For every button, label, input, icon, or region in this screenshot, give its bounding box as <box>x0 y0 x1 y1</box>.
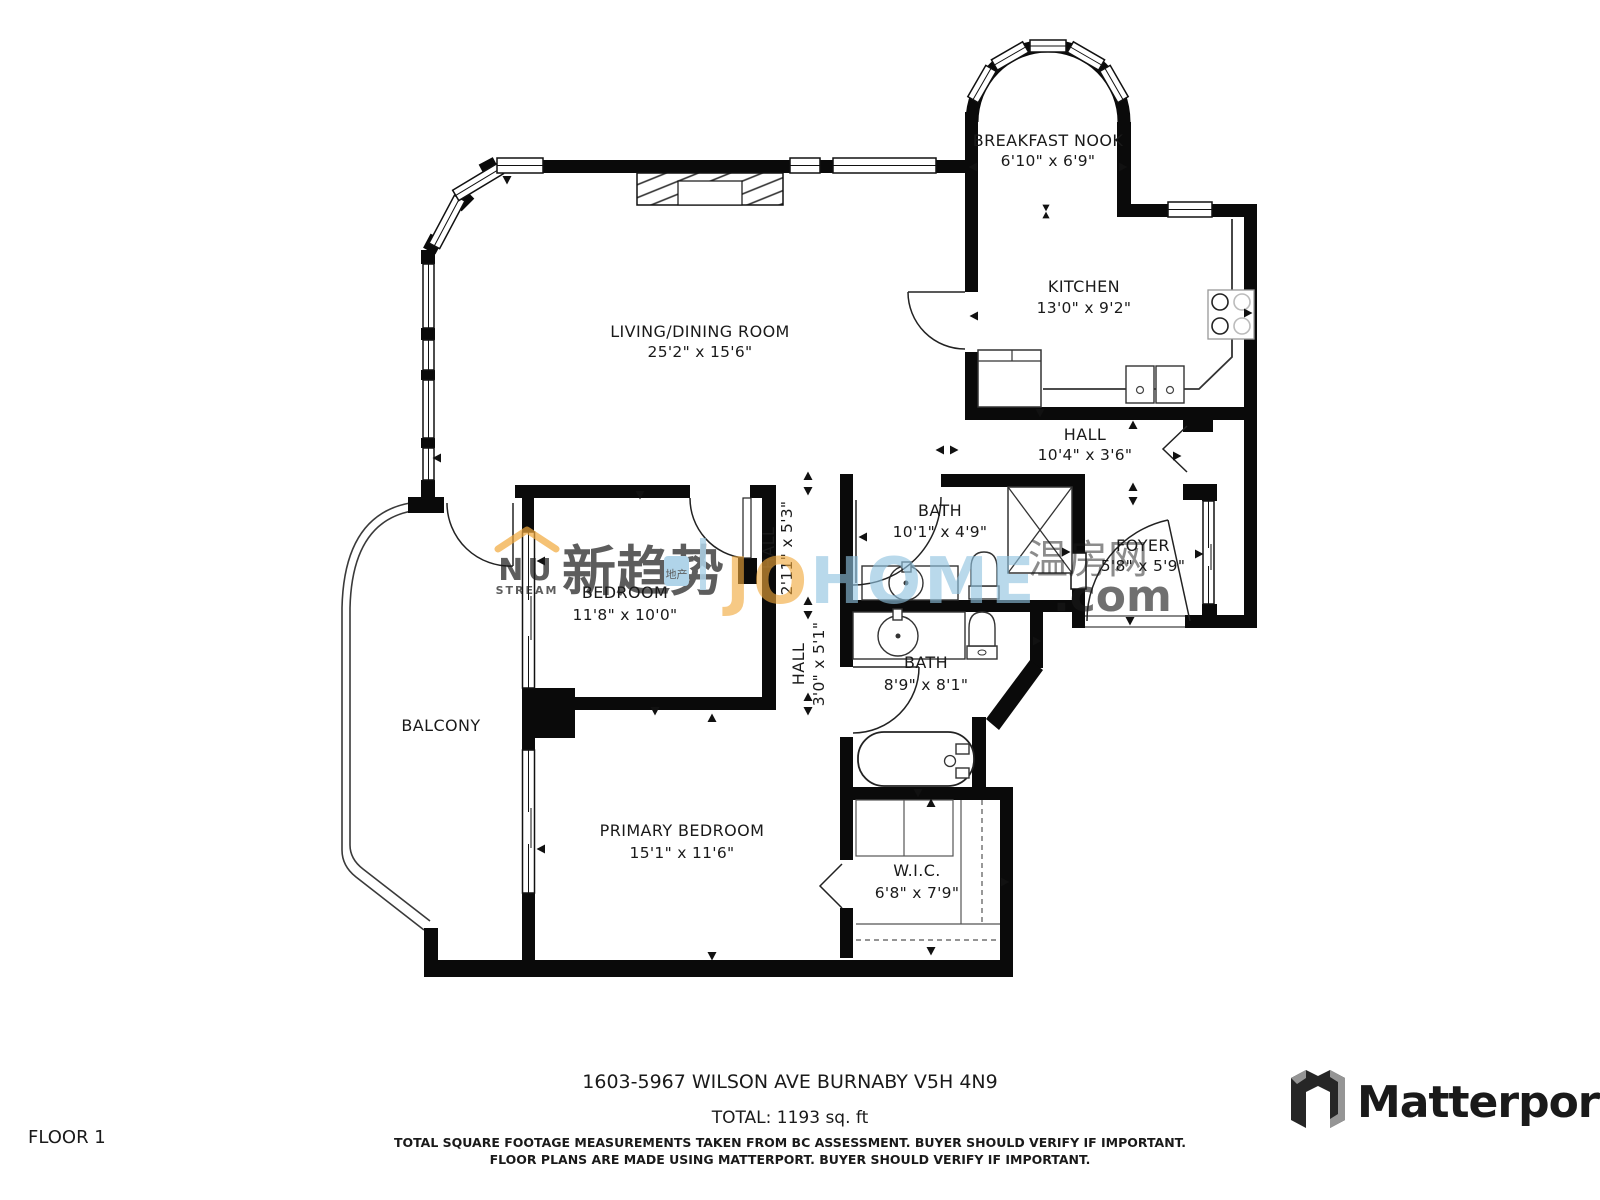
matterport-logo-icon <box>1291 1070 1345 1128</box>
nu-stream-cn-text: 新趋势 <box>562 540 724 603</box>
room-label-hall-upper: HALL <box>1064 425 1106 444</box>
room-dims-bath-main: 10'1" x 4'9" <box>893 523 988 541</box>
room-label-living-dining: LIVING/DINING ROOM <box>610 322 790 341</box>
watermark-divider <box>700 538 706 590</box>
room-label-bath-ensuite: BATH <box>904 653 948 672</box>
address-text: 1603-5967 WILSON AVE BURNABY V5H 4N9 <box>582 1071 997 1093</box>
johome-tld: .com <box>1053 571 1172 622</box>
room-dims-bath-ensuite: 8'9" x 8'1" <box>884 676 969 694</box>
nook-table-icon <box>1042 205 1049 219</box>
windows <box>423 158 1214 893</box>
room-dims-bedroom: 11'8" x 10'0" <box>573 606 678 624</box>
nu-stream-stream-text: STREAM <box>496 584 559 597</box>
footer: 1603-5967 WILSON AVE BURNABY V5H 4N9 TOT… <box>28 1070 1600 1167</box>
bay-window-arch <box>968 40 1128 122</box>
johome-wordmark: JOHOME <box>722 545 1038 619</box>
nu-stream-cn-suffix: 地产 <box>666 567 688 581</box>
kitchen-sink-icon <box>1126 366 1184 403</box>
room-label-wic: W.I.C. <box>893 861 941 880</box>
nu-stream-nu-text: NU <box>498 553 555 588</box>
room-dims-hall-lower: 3'0" x 5'1" <box>810 622 828 707</box>
room-label-hall-lower: HALL <box>789 643 808 685</box>
floorplan-svg: BREAKFAST NOOK 6'10" x 6'9" KITCHEN 13'0… <box>0 0 1600 1200</box>
floor-label: FLOOR 1 <box>28 1127 106 1148</box>
disclaimer-text-1: TOTAL SQUARE FOOTAGE MEASUREMENTS TAKEN … <box>394 1135 1186 1150</box>
floorplan-page: BREAKFAST NOOK 6'10" x 6'9" KITCHEN 13'0… <box>0 0 1600 1200</box>
disclaimer-text-2: FLOOR PLANS ARE MADE USING MATTERPORT. B… <box>490 1152 1091 1167</box>
fireplace-icon <box>637 173 783 205</box>
room-label-kitchen: KITCHEN <box>1048 277 1120 296</box>
room-dims-breakfast-nook: 6'10" x 6'9" <box>1001 152 1096 170</box>
hall-closet-bifold-door <box>1163 426 1187 472</box>
room-dims-hall-upper: 10'4" x 3'6" <box>1038 446 1133 464</box>
room-dims-living-dining: 25'2" x 15'6" <box>648 343 753 361</box>
room-label-breakfast-nook: BREAKFAST NOOK <box>973 131 1124 150</box>
matterport-wordmark: Matterport <box>1357 1077 1600 1128</box>
room-dims-kitchen: 13'0" x 9'2" <box>1037 299 1132 317</box>
matterport-logo: Matterport <box>1291 1070 1600 1128</box>
room-label-balcony: BALCONY <box>401 716 480 735</box>
room-label-bath-main: BATH <box>918 501 962 520</box>
room-dims-primary-bedroom: 15'1" x 11'6" <box>630 844 735 862</box>
johome-watermark: JOHOME 温房网 .com <box>722 537 1172 622</box>
wic-bifold-door <box>820 864 842 908</box>
room-label-primary-bedroom: PRIMARY BEDROOM <box>600 821 765 840</box>
kitchen-door-arc <box>908 292 965 349</box>
room-dims-wic: 6'8" x 7'9" <box>875 884 960 902</box>
total-area-text: TOTAL: 1193 sq. ft <box>711 1108 869 1128</box>
